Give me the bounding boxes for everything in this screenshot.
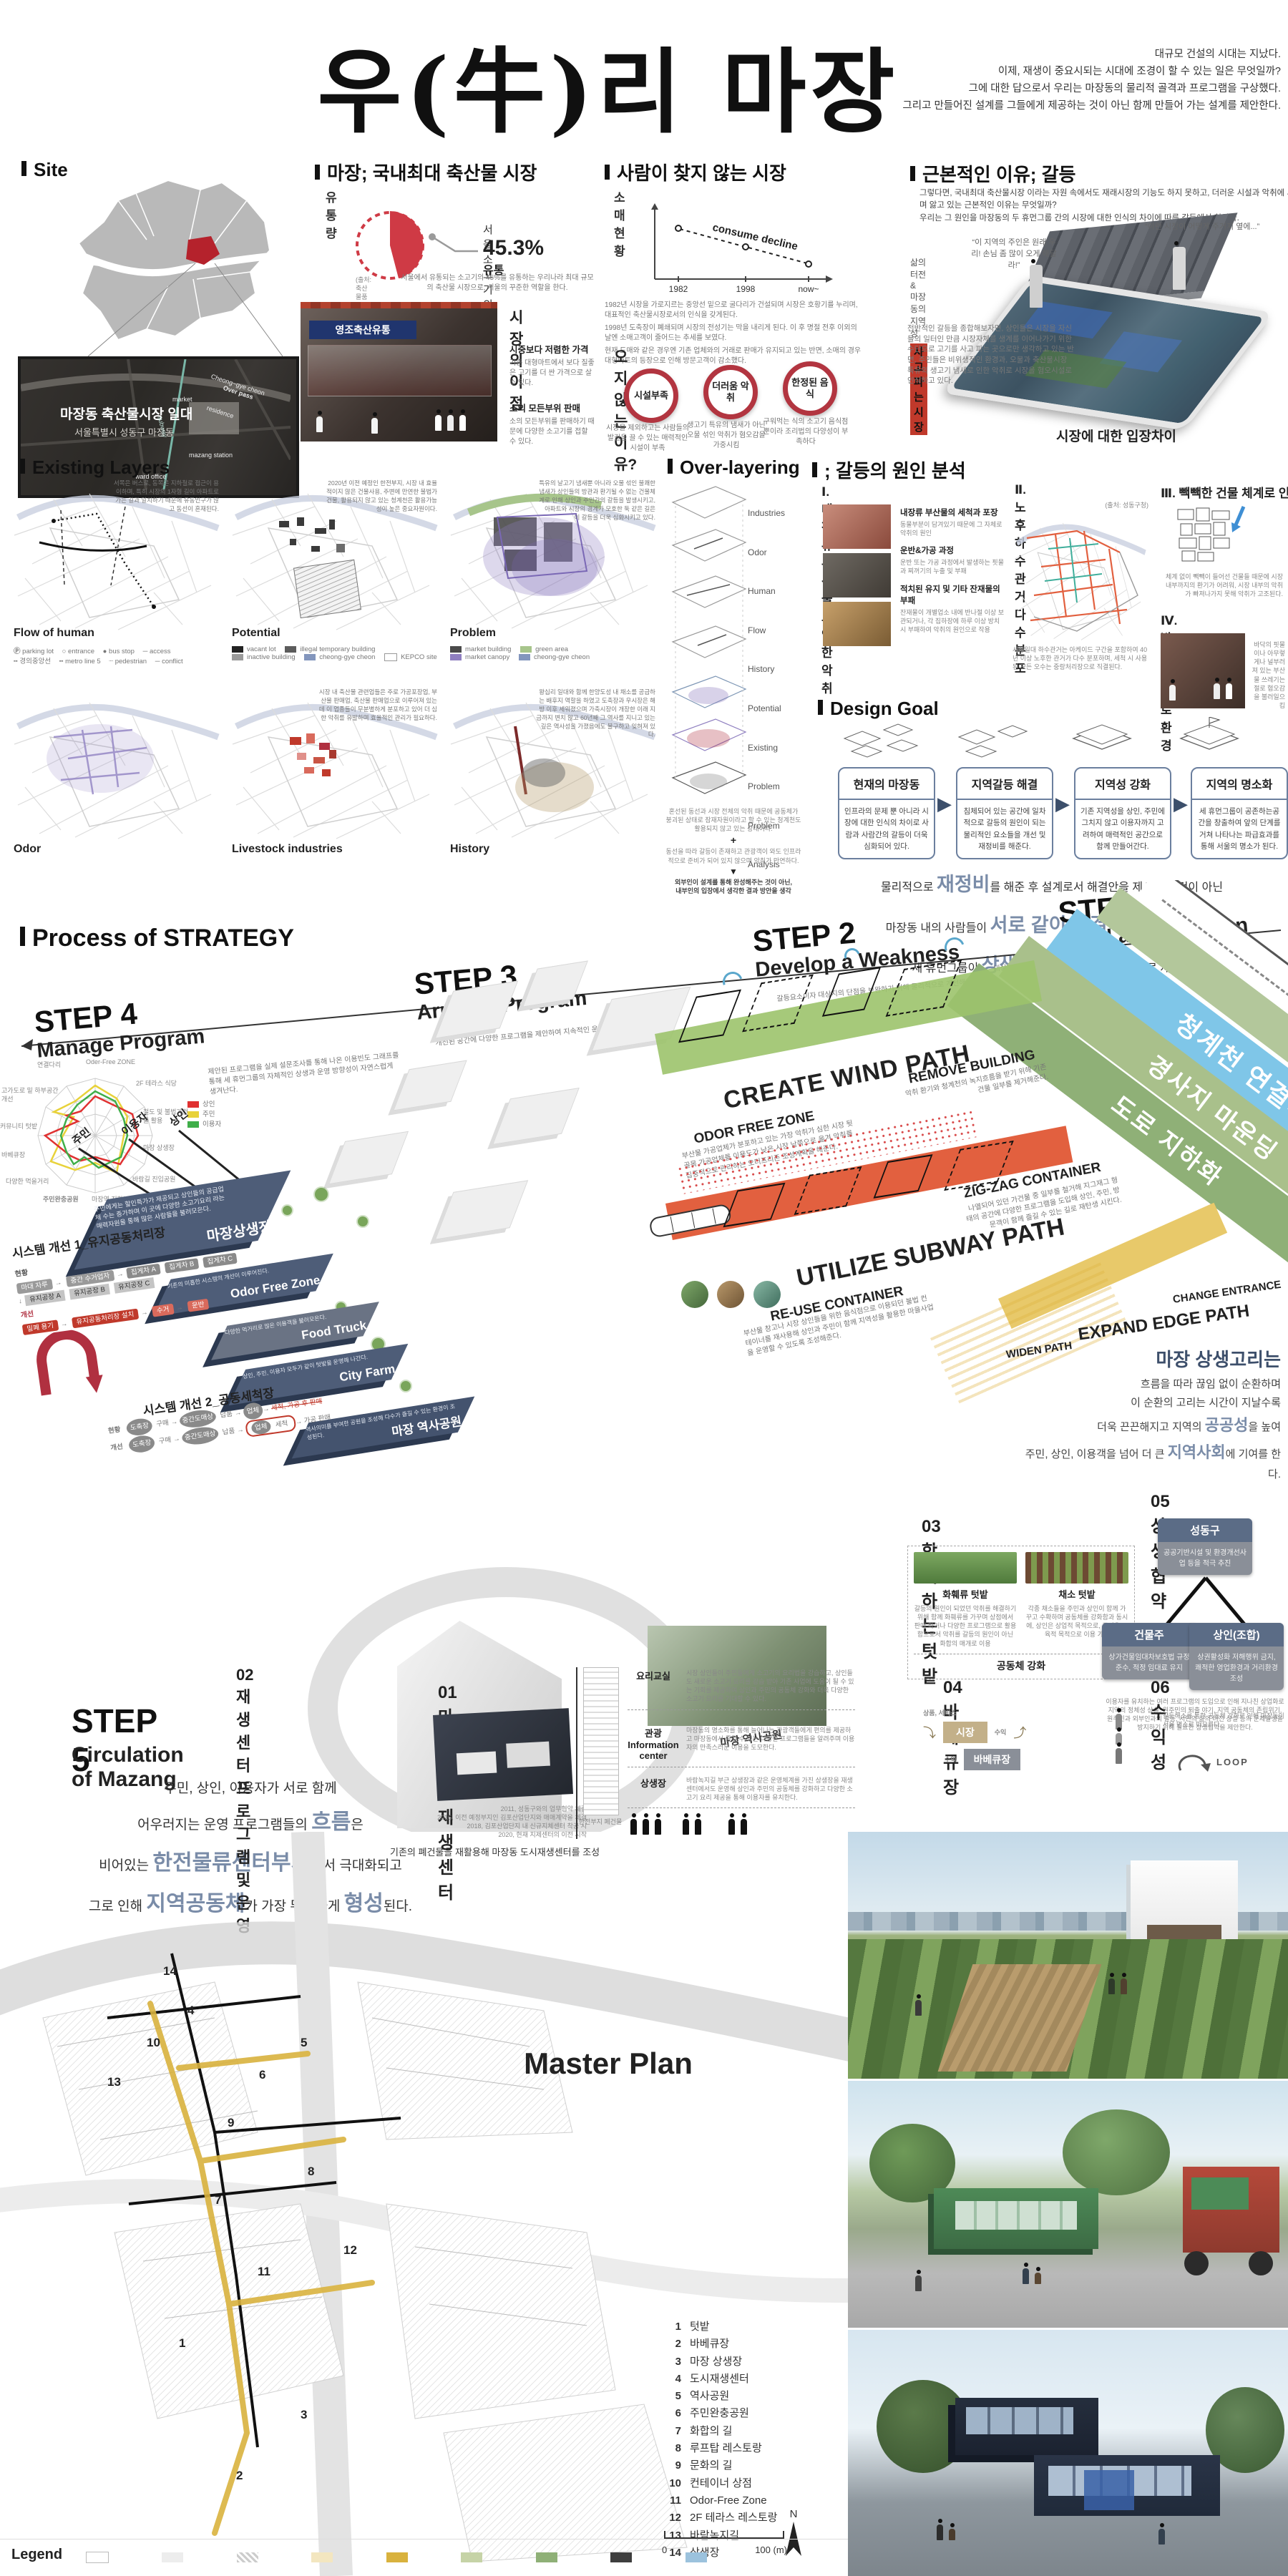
master-plan-list: 1텃밭 2바베큐장 3마장 상생장 4도시재생센터 5역사공원 6주민완충공원 … (665, 2318, 777, 2562)
market-desc: 서울에서 유통되는 소고기의 45%를 유통하는 우리나라 최대 규모의 축산물… (401, 273, 594, 293)
legend-swatch (311, 2552, 333, 2562)
x-tick-now: now~ (798, 284, 819, 294)
x-tick-1998: 1998 (736, 284, 756, 294)
market-photo: 영조축산유통 (301, 302, 497, 441)
render-container-park (848, 2081, 1288, 2328)
intro-line: 이제, 재생이 중요시되는 시대에 조경이 할 수 있는 일은 무엇일까? (823, 64, 1281, 81)
svg-text:11: 11 (258, 2265, 270, 2278)
pie-callout-value: 45.3% 유통 (483, 236, 544, 278)
seoul-map (68, 172, 283, 358)
svg-text:7: 7 (215, 2193, 221, 2207)
bullet: 1982년 시장을 가로지르는 중앙선 밑으로 굴다리가 건설되며 시장은 호황… (605, 301, 862, 321)
goal-box-1: 현재의 마장동인프라의 문제 뿐 아니라 시장에 대한 인식의 차이로 사람과 … (838, 767, 935, 859)
cause4-photo (1161, 633, 1245, 708)
p05-node-owner: 건물주상가건물임대차보호법 규정 준수, 적정 임대료 유지 (1102, 1623, 1196, 1679)
reason-circle-1: 시설부족 (624, 369, 678, 423)
panel-label: Potential (232, 627, 280, 640)
conflict-heading: 근본적인 이유; 갈등 (910, 160, 1075, 187)
cause1-photos (823, 504, 891, 646)
building-block (492, 1088, 580, 1145)
satellite-title: 마장동 축산물시장 일대 (60, 404, 192, 423)
p04-flow: 상품, 서비스 ⤵ 시장 수익 ⤴ 수익 바베큐장 (923, 1709, 1109, 1770)
panel-note: 특유의 날고기 냄새뿐 아니라 오물 섞인 불쾌한 냄새가 상인들의 방관과 환… (537, 479, 655, 522)
plus-sign: + (665, 834, 801, 846)
pie-percent: 45.3% (483, 236, 544, 260)
layer-panel-livestock: 시장 내 축산물 관련업들은 주로 가공포장업, 부산물 판매업, 축산물 판매… (229, 687, 440, 873)
radar-axis: Oder-Free ZONE (86, 1058, 135, 1066)
svg-text:1: 1 (179, 2336, 185, 2350)
layer-label: Existing Problem (748, 728, 785, 806)
layer-label: Odor (748, 533, 785, 572)
master-plan-legend: Legend (0, 2539, 848, 2576)
building-block (435, 1180, 528, 1239)
panel-label: Flow of human (14, 627, 94, 640)
intro-line: 대규모 건설의 시대는 지났다. (823, 47, 1281, 64)
panel-note: 시장 내 축산물 관련업들은 주로 가공포장업, 부산물 판매업, 축산물 판매… (316, 688, 437, 723)
goal-box-2: 지역갈등 해결침체되어 있는 공간에 일차적으로 갈등의 원인이 되는 물리적인… (956, 767, 1053, 859)
goal-box-4: 지역의 명소화세 휴먼그룹이 공존하는공간을 창출하여 앞의 단계를 거쳐 나타… (1191, 767, 1288, 859)
p01-program-table: 한전부지 폐건물 요리교실 시장 상인들이 주민들에게 소고기의 요리법을 강습… (576, 1667, 857, 1839)
p01-row-3: 상생장 바람녹지길 부근 상생장과 같은 운영체계를 가진 상생장을 재생센터에… (628, 1776, 855, 1808)
p03-card-flower: 화훼류 텃밭 갈등의 원인이 되었던 악취를 해결하기 위해 함께 화훼류를 가… (914, 1552, 1017, 1648)
svg-text:13: 13 (107, 2075, 121, 2089)
goal-arrow: ▶ (1055, 793, 1070, 815)
cause4-caption: 바닥의 핏물이나 아무렇게나 널부러져 있는 부산물 쓰레기는 절로 혐오감을 … (1251, 640, 1285, 710)
panel-note: 서쪽은 버스로, 동쪽은 지하철로 접근이 용이하며, 특히 시장의 1자형 길… (112, 479, 219, 514)
train-icon (645, 1198, 736, 1246)
goal-box-3: 지역성 강화기존 지역성을 상인, 주민에 그치지 않고 이용자까지 고려하여 … (1074, 767, 1171, 859)
adv-desc: 소의 모든부위를 판매하기 때문에 다양한 소고기를 접할 수 있다. (509, 417, 595, 447)
building-block (393, 1060, 467, 1111)
p05-node-seongdong: 성동구공공기반시설 및 환경개선사업 등을 적극 추진 (1158, 1518, 1252, 1575)
p06-loop-label: LOOP (1216, 1757, 1249, 1767)
panel-legend: Ⓟ parking lot ○ entrance ● bus stop ─ ac… (14, 645, 221, 665)
radar-axis: 다양한 먹을거리 (6, 1177, 49, 1186)
legend-swatch (610, 2552, 632, 2562)
layer-label: Industries (748, 494, 785, 533)
cause2-source: (출처: 성동구청) (1088, 501, 1148, 509)
layer-label: History (748, 650, 785, 689)
radar-axis: 연결다리 (37, 1060, 61, 1069)
reason-circle-2: 더러움 악취 (703, 365, 758, 419)
goal-iso-diagrams (830, 717, 1274, 764)
conflict-intro-1: 그렇다면, 국내최대 축산물시장 이라는 자원 속에서도 재래시장의 기능도 하… (919, 187, 1288, 213)
market-heading: 마장; 국내최대 축산물 시장 (315, 159, 537, 185)
svg-text:4: 4 (187, 2004, 195, 2017)
panel-label: History (450, 843, 489, 856)
overlay-sum2: 동선을 따라 갈등이 존재하고 관광객이 와도 인프라적으로 준비가 되어 있지… (665, 847, 801, 864)
svg-text:5: 5 (301, 2036, 307, 2049)
adv-title: 시중보다 저렴한 가격 (509, 342, 595, 356)
merchant-silhouette (1170, 247, 1189, 293)
dense-blocks-diagram (1172, 502, 1258, 568)
pie-leader-line (428, 233, 478, 254)
cause1-points: 내장류 부산물의 세척과 포장 동물부분이 담겨있기 때문에 그 자체로 악취의… (900, 507, 1004, 636)
layer-panel-problem: 특유의 날고기 냄새뿐 아니라 오물 섞인 불쾌한 냄새가 상인들의 방관과 환… (447, 478, 658, 671)
overlay-sum1: 혼선된 동선과 시장 전체의 악취 때문에 공동체가 붕괴된 상태로 잠재자원이… (665, 807, 801, 833)
legend-swatch (86, 2552, 109, 2563)
legend-swatch (386, 2552, 408, 2562)
callout-utilize-subway-path: UTILIZE SUBWAY PATH (794, 1213, 1067, 1292)
render-rooftop-farm (848, 1832, 1288, 2079)
poster-ur-majang: 우(牛)리 마장 대규모 건설의 시대는 지났다. 이제, 재생이 중요시되는 … (0, 0, 1288, 2576)
declining-sub: 소매현황 (614, 187, 625, 259)
svg-text:6: 6 (259, 2068, 265, 2082)
layer-panel-history: 왕십리 일대와 함께 한양도성 내 채소를 공급하는 배후지 역할을 하였고 도… (447, 687, 658, 873)
building-block (328, 1131, 409, 1184)
svg-text:10: 10 (147, 2036, 160, 2049)
overlay-stack (665, 481, 751, 796)
reason-caption-1: 시장을 제외하고는 사람들의 발길을 끌 수 있는 매력적인 시설이 부족 (605, 424, 691, 454)
svg-text:9: 9 (228, 2116, 234, 2129)
market-sub: 유통량 (326, 187, 337, 241)
legend-swatch (686, 2552, 707, 2562)
adv-title: 소의 모든부위 판매 (509, 401, 595, 414)
panel-legend: market building green area market canopy… (450, 645, 658, 661)
reason-caption-2: 생고기 특유의 냄새가 아닌 오물 섞인 악취가 혐오감을 가중시킴 (683, 421, 769, 451)
cause-heading: ; 갈등의 원인 분석 (812, 457, 966, 483)
render-container-plaza (848, 2330, 1288, 2576)
p01-aerial-photo (433, 1708, 573, 1801)
p01-row-1: 요리교실 시장 상인들이 주민들에게 소고기의 요리법을 강습하고, 상인들도 … (628, 1669, 855, 1710)
x-tick-1982: 1982 (669, 284, 688, 294)
bullet: 1998년 도축장이 폐쇄되며 시장의 전성기는 막을 내리게 된다. 이 후 … (605, 323, 862, 343)
radar-axis: 2F 테라스 식당 (136, 1079, 177, 1088)
reason-caption-3: 구워먹는 식의 소고기 음식점 뿐이라 조리법의 다양성이 부족하다 (763, 417, 849, 447)
annotation-consume-decline: consume decline (711, 221, 799, 253)
svg-text:2: 2 (236, 2469, 243, 2482)
adv-desc: 기존 대형마트에서 보다 질좋은 고기를 더 싼 가격으로 살 수 있다. (509, 358, 595, 389)
radar-axis: 고가도로 밑 하부공간 개선 (1, 1086, 59, 1103)
intro-paragraph: 대규모 건설의 시대는 지났다. 이제, 재생이 중요시되는 시대에 조경이 할… (823, 47, 1281, 115)
p06-silhouettes (1113, 1714, 1125, 1767)
legend-swatches (86, 2551, 711, 2564)
overlay-heading: Over-layering (668, 457, 800, 479)
intro-line: 그리고 만들어진 설계를 그들에게 제공하는 것이 아닌 함께 만들어 가는 설… (823, 98, 1281, 115)
reference-photo-circles (681, 1281, 781, 1312)
conflict-para-left: 전반적인 갈등을 종합해보자면, 상인들은 시장을 자신들의 일터인 만큼 시장… (907, 323, 1075, 386)
layer-panel-flow: 서쪽은 버스로, 동쪽은 지하철로 접근이 용이하며, 특히 시장의 1자형 길… (11, 478, 222, 671)
p06-desc: 갈등해소를 통한 공동체 강화로 인해 마장동이 서울 명소로 떠오른다. (1163, 1712, 1284, 1729)
layer-panel-potential: 2020년 이전 예정인 한전부지, 시장 내 효율적이지 않은 건물사용, 주… (229, 478, 440, 671)
svg-text:12: 12 (343, 2243, 357, 2257)
goal-arrow: ▶ (937, 793, 952, 815)
legend-swatch (461, 2552, 482, 2562)
p03-cards: 화훼류 텃밭 갈등의 원인이 되었던 악취를 해결하기 위해 함께 화훼류를 가… (907, 1546, 1135, 1679)
p03-footer: 공동체 강화 (914, 1659, 1128, 1673)
panel-label: Livestock industries (232, 843, 343, 856)
panel-note: 왕십리 일대와 함께 한양도성 내 채소를 공급하는 배후지 역할을 하였고 도… (534, 688, 655, 739)
panel-label: Problem (450, 627, 496, 640)
legend-swatch (162, 2552, 183, 2562)
loop-title: 마장 상생고리는 (1023, 1344, 1281, 1375)
sewer-map (1013, 509, 1148, 642)
layer-label: Potential (748, 689, 785, 728)
resident-silhouette (1027, 265, 1045, 311)
bullet: 현재 도매와 같은 경우엔 기존 업체와의 거래로 판매가 유지되고 있는 반면… (605, 346, 862, 366)
right-quote: “이런 시장이 어떻게 주거지 옆에...” (1145, 220, 1274, 232)
market-adv-2: 소의 모든부위 판매 소의 모든부위를 판매하기 때문에 다양한 소고기를 접할… (509, 401, 595, 447)
panel-note: 2020년 이전 예정인 한전부지, 시장 내 효율적이지 않은 건물사용, 주… (323, 479, 437, 514)
market-photo-sign: 영조축산유통 (335, 323, 390, 337)
legend-swatch (237, 2552, 258, 2562)
building-grid (583, 1667, 619, 1815)
system1-diagram: 현황 마대 자루→ 중간 수거업자→ 집게차 A 집게차 B 집게차 C ↓ 유… (14, 1237, 268, 1407)
cause3-caption: 체계 없이 빽빽이 들어선 건물들 때문에 시장 내부까지의 환기가 어려워, … (1165, 572, 1283, 598)
site-heading: Site (21, 159, 68, 181)
conflict-caption: 시장에 대한 입장차이 (1023, 426, 1209, 445)
panel-label: Odor (14, 843, 41, 856)
intro-line: 그에 대한 답으로서 우리는 마장동의 물리적 골격과 프로그램을 구상했다. (823, 81, 1281, 98)
callout-change-entrance: CHANGE ENTRANCE (1172, 1279, 1282, 1306)
legend-title: Legend (11, 2547, 62, 2563)
master-plan-heading: Master Plan (444, 2046, 773, 2081)
legend-swatch (536, 2552, 557, 2562)
cause3-title: Ⅲ. 빽빽한 건물 체계로 인한 환기 곤란 (1161, 483, 1288, 501)
declining-heading: 사람이 찾지 않는 시장 (605, 159, 786, 185)
panel-legend: vacant lot illegal temporary building in… (232, 645, 439, 661)
label-mazang-station: mazang station (189, 451, 233, 459)
layer-label: Human Flow (748, 572, 785, 650)
reason-circle-3: 한정된 음식 (783, 361, 837, 416)
svg-text:14: 14 (163, 1964, 177, 1978)
existing-heading: Existing Layers (20, 457, 170, 479)
radar-axis: 커뮤니티 텃밭 (0, 1122, 37, 1131)
p01-row-2: 관광 Information center 마장동의 명소화를 통해 늘어나는 … (628, 1726, 855, 1767)
market-adv-1: 시중보다 저렴한 가격 기존 대형마트에서 보다 질좋은 고기를 더 싼 가격으… (509, 342, 595, 389)
layer-panel-odor: Odor (11, 687, 222, 873)
p06-loop-arrow (1174, 1746, 1213, 1777)
section-master-plan: Master Plan (0, 1832, 848, 2576)
declining-bullets: 1982년 시장을 가로지르는 중앙선 밑으로 굴다리가 건설되며 시장은 호황… (605, 301, 862, 366)
svg-text:3: 3 (301, 2408, 307, 2421)
radar-axis: 바베큐장 (1, 1151, 25, 1159)
consume-decline-chart: 1982 1998 now~ consume decline (637, 202, 837, 295)
building-label: 한전부지 폐건물 (577, 1818, 623, 1826)
left-quote: “이 지역의 주인은 원래 우리! 손님 좀 많이 오게 해달라!” (967, 236, 1060, 270)
label-market: market (172, 395, 192, 404)
p05-node-merchant: 상인(조합)상권활성화 저해행위 금지, 쾌적한 영업환경과 거리환경 조성 (1189, 1623, 1284, 1690)
goal-arrow: ▶ (1174, 793, 1188, 815)
svg-text:8: 8 (308, 2165, 314, 2178)
cause2-caption: 시장일대 하수관거는 아케이드 구간을 포함하여 40년 이상 노후한 관거가 … (1013, 645, 1152, 671)
loop-paragraph: 마장 상생고리는 흐름을 따라 끊임 없이 순환하며 이 순환의 고리는 시간이… (1023, 1344, 1281, 1483)
